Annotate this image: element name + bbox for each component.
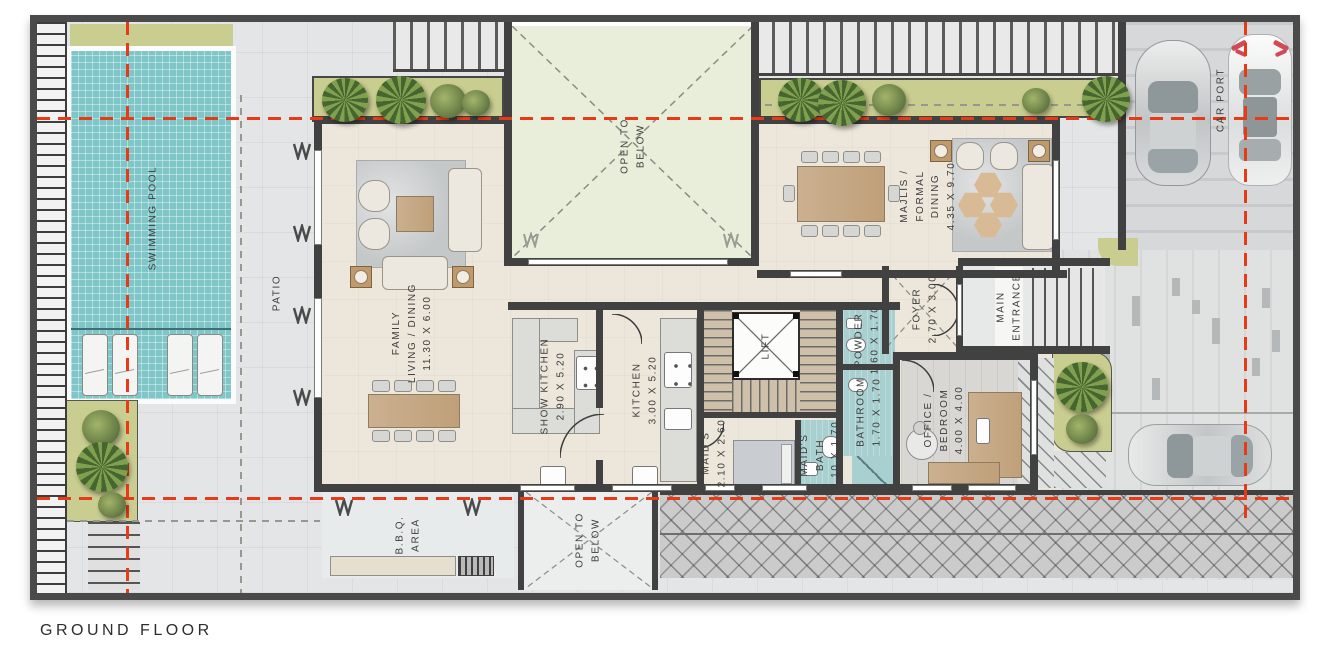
floor-plan-canvas: SWIMMING POOL PATIO FAMILY LIVING / DINI… — [0, 0, 1328, 665]
plan-title: GROUND FLOOR — [40, 622, 213, 640]
perimeter-wall — [30, 15, 1300, 600]
